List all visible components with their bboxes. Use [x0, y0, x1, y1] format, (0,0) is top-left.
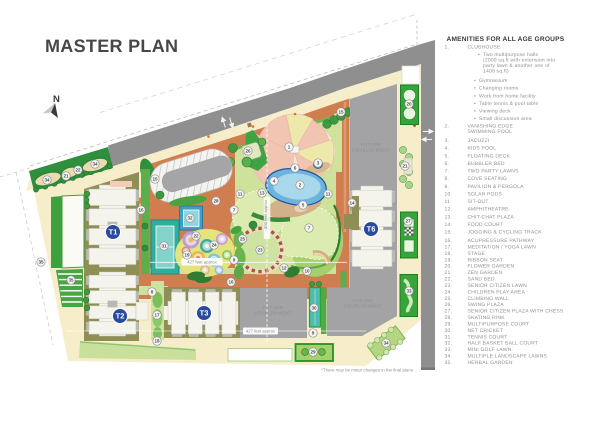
svg-text:18: 18 [154, 339, 160, 344]
svg-text:34: 34 [92, 162, 98, 167]
svg-text:20.: 20. [445, 264, 453, 270]
svg-text:BUBBLER BED: BUBBLER BED [468, 161, 505, 167]
svg-text:SIT-OUT: SIT-OUT [468, 199, 489, 205]
svg-text:15: 15 [338, 110, 344, 115]
svg-text:3: 3 [317, 161, 320, 166]
svg-text:24: 24 [211, 243, 217, 248]
svg-text:1400 sq.ft): 1400 sq.ft) [483, 69, 509, 75]
svg-text:22.: 22. [445, 277, 453, 283]
svg-text:MULTIPLE LANDSCAPE LAWNS: MULTIPLE LANDSCAPE LAWNS [468, 354, 548, 360]
svg-text:•: • [474, 78, 476, 84]
svg-text:FUTURE: FUTURE [353, 298, 373, 303]
svg-text:T3: T3 [200, 309, 209, 318]
svg-text:26.: 26. [445, 302, 453, 308]
svg-text:RIBBON SEAT: RIBBON SEAT [468, 257, 503, 263]
svg-text:14.: 14. [445, 222, 453, 228]
svg-text:TENNIS COURT: TENNIS COURT [468, 334, 508, 340]
svg-text:13: 13 [259, 191, 265, 196]
svg-text:MEDITATION / YOGA LAWN: MEDITATION / YOGA LAWN [468, 244, 537, 250]
svg-text:2.: 2. [445, 123, 450, 129]
svg-text:•: • [474, 109, 476, 115]
svg-text:19: 19 [184, 253, 190, 258]
svg-text:JACUZZI: JACUZZI [468, 138, 490, 144]
svg-text:34: 34 [44, 178, 50, 183]
svg-text:FLOWER GARDEN: FLOWER GARDEN [468, 264, 515, 270]
svg-text:Gymnasium: Gymnasium [479, 78, 507, 84]
svg-text:9.: 9. [445, 184, 450, 190]
svg-text:•: • [474, 116, 476, 122]
svg-text:17: 17 [154, 313, 160, 318]
svg-text:HERBAL GARDEN: HERBAL GARDEN [468, 360, 513, 366]
svg-text:27: 27 [405, 219, 411, 224]
svg-text:SWING PLAZA: SWING PLAZA [468, 302, 505, 308]
svg-text:6.: 6. [445, 161, 450, 167]
svg-text:24.: 24. [445, 289, 453, 295]
svg-text:31.: 31. [445, 334, 453, 340]
svg-text:26: 26 [245, 149, 251, 154]
svg-text:1: 1 [288, 145, 291, 150]
svg-text:SKATING RINK: SKATING RINK [468, 315, 506, 321]
svg-text:11.: 11. [445, 199, 452, 205]
svg-text:7.: 7. [445, 169, 450, 175]
svg-text:MINI GOLF LAWN: MINI GOLF LAWN [468, 347, 512, 353]
svg-text:FUTURE: FUTURE [361, 142, 381, 147]
svg-text:STAGE: STAGE [468, 251, 486, 257]
svg-text:DEVELOPMENT: DEVELOPMENT [352, 148, 390, 153]
svg-text:CHIT-CHAT PLAZA: CHIT-CHAT PLAZA [468, 214, 515, 220]
svg-text:9: 9 [233, 258, 236, 263]
svg-text:6: 6 [294, 166, 297, 171]
svg-text:28: 28 [213, 199, 219, 204]
svg-text:DEVELOPMENT: DEVELOPMENT [344, 304, 382, 309]
svg-text:30: 30 [311, 306, 317, 311]
svg-text:16: 16 [228, 280, 234, 285]
svg-text:2: 2 [299, 183, 302, 188]
svg-text:3.: 3. [445, 138, 450, 144]
svg-text:12.: 12. [445, 207, 453, 213]
svg-text:Table tennis & pool table: Table tennis & pool table [479, 101, 539, 107]
svg-text:4: 4 [273, 179, 276, 184]
svg-text:29: 29 [310, 350, 316, 355]
svg-text:34.: 34. [445, 354, 453, 360]
svg-text:35: 35 [38, 260, 44, 265]
svg-text:NET CRICKET: NET CRICKET [468, 328, 503, 334]
svg-text:SAND BED: SAND BED [468, 277, 495, 283]
svg-text:SWIMMING POOL: SWIMMING POOL [468, 129, 513, 135]
svg-text:32.: 32. [445, 341, 453, 347]
svg-text:COVE SEATING: COVE SEATING [468, 176, 508, 182]
svg-text:ZEN GARDEN: ZEN GARDEN [468, 270, 503, 276]
svg-text:11: 11 [326, 192, 331, 197]
svg-text:10.: 10. [445, 191, 453, 197]
svg-text:15: 15 [152, 177, 158, 182]
svg-text:23: 23 [257, 248, 263, 253]
svg-text:35.: 35. [445, 360, 453, 366]
svg-text:•: • [474, 86, 476, 92]
svg-text:22: 22 [193, 234, 199, 239]
svg-text:10: 10 [304, 269, 310, 274]
svg-text:33.: 33. [445, 347, 453, 353]
svg-text:31: 31 [161, 244, 167, 249]
svg-text:CHILDREN PLAY AREA: CHILDREN PLAY AREA [468, 289, 526, 295]
svg-text:29.: 29. [445, 321, 453, 327]
svg-text:Small discussion area: Small discussion area [479, 116, 532, 122]
svg-text:13.: 13. [445, 214, 453, 220]
svg-text:T1: T1 [109, 228, 118, 237]
svg-text:22: 22 [75, 168, 81, 173]
svg-text:30.: 30. [445, 328, 453, 334]
svg-text:27.: 27. [445, 309, 453, 315]
svg-text:25: 25 [240, 237, 246, 242]
svg-text:21: 21 [63, 174, 69, 179]
svg-text:MASTER PLAN: MASTER PLAN [45, 36, 178, 56]
svg-text:427 feet approx: 427 feet approx [187, 259, 218, 264]
svg-text:T6: T6 [367, 225, 376, 234]
svg-text:•: • [474, 93, 476, 99]
svg-text:JOGGING & CYCLING TRACK: JOGGING & CYCLING TRACK [468, 230, 543, 236]
svg-text:AMPHITHEATRE: AMPHITHEATRE [468, 207, 510, 213]
svg-text:CLIMBING WALL: CLIMBING WALL [468, 296, 510, 302]
svg-text:SENIOR CITIZEN PLAZA WITH CHES: SENIOR CITIZEN PLAZA WITH CHESS [468, 309, 564, 315]
svg-text:•: • [478, 52, 480, 58]
svg-text:11: 11 [238, 192, 243, 197]
svg-text:Work from home facility: Work from home facility [479, 93, 536, 99]
svg-text:19.: 19. [445, 257, 453, 263]
svg-text:17.: 17. [445, 244, 453, 250]
svg-text:KIDS POOL: KIDS POOL [468, 146, 497, 152]
svg-text:T2: T2 [116, 312, 125, 321]
svg-text:*There may be minor changes in: *There may be minor changes in the final… [321, 368, 414, 373]
svg-text:AMENITIES FOR ALL AGE GROUPS: AMENITIES FOR ALL AGE GROUPS [447, 36, 565, 43]
svg-text:8: 8 [151, 290, 154, 295]
svg-text:15.: 15. [445, 230, 453, 236]
svg-text:12: 12 [281, 266, 287, 271]
svg-text:23.: 23. [445, 283, 453, 289]
svg-text:18.: 18. [445, 251, 453, 257]
svg-text:CLUBHOUSE: CLUBHOUSE [468, 45, 501, 51]
svg-text:FUTURE: FUTURE [263, 305, 283, 310]
svg-text:Viewing deck: Viewing deck [479, 109, 511, 115]
svg-text:20: 20 [406, 102, 412, 107]
svg-text:DEVELOPMENT: DEVELOPMENT [254, 311, 292, 316]
svg-text:9: 9 [312, 331, 315, 336]
svg-text:28.: 28. [445, 315, 453, 321]
svg-text:HALF BASKET BALL COURT: HALF BASKET BALL COURT [468, 341, 539, 347]
svg-text:34: 34 [383, 341, 389, 346]
svg-text:FLOATING DECK: FLOATING DECK [468, 153, 511, 159]
svg-text:FOOD COURT: FOOD COURT [468, 222, 504, 228]
svg-text:MULTIPURPOSE COURT: MULTIPURPOSE COURT [468, 321, 530, 327]
svg-text:7: 7 [308, 226, 311, 231]
svg-text:16: 16 [138, 208, 144, 213]
svg-text:16.: 16. [445, 238, 453, 244]
svg-text:1.: 1. [445, 45, 450, 51]
svg-text:TWO PARTY LAWNS: TWO PARTY LAWNS [468, 169, 520, 175]
svg-text:4.: 4. [445, 146, 450, 152]
svg-text:25.: 25. [445, 296, 453, 302]
svg-text:PAVILION & PERGOLA: PAVILION & PERGOLA [468, 184, 525, 190]
svg-text:•: • [474, 101, 476, 107]
svg-text:N: N [53, 94, 60, 105]
svg-text:5: 5 [302, 203, 305, 208]
svg-text:Changing rooms: Changing rooms [479, 86, 519, 92]
svg-text:427 feet approx: 427 feet approx [246, 329, 276, 334]
svg-text:14: 14 [349, 201, 355, 206]
svg-text:5.: 5. [445, 153, 450, 159]
svg-text:33: 33 [406, 289, 412, 294]
svg-text:35: 35 [68, 278, 74, 283]
svg-text:SENIOR CITIZEN LAWN: SENIOR CITIZEN LAWN [468, 283, 528, 289]
svg-text:21.: 21. [445, 270, 453, 276]
svg-text:ACUPRESSURE PATHWAY: ACUPRESSURE PATHWAY [468, 238, 535, 244]
svg-text:7: 7 [233, 208, 236, 213]
svg-text:32: 32 [187, 216, 193, 221]
svg-text:SOLAR PODS: SOLAR PODS [468, 191, 503, 197]
svg-text:300 feet approx: 300 feet approx [263, 199, 268, 229]
svg-text:21: 21 [402, 164, 408, 169]
svg-text:8.: 8. [445, 176, 450, 182]
